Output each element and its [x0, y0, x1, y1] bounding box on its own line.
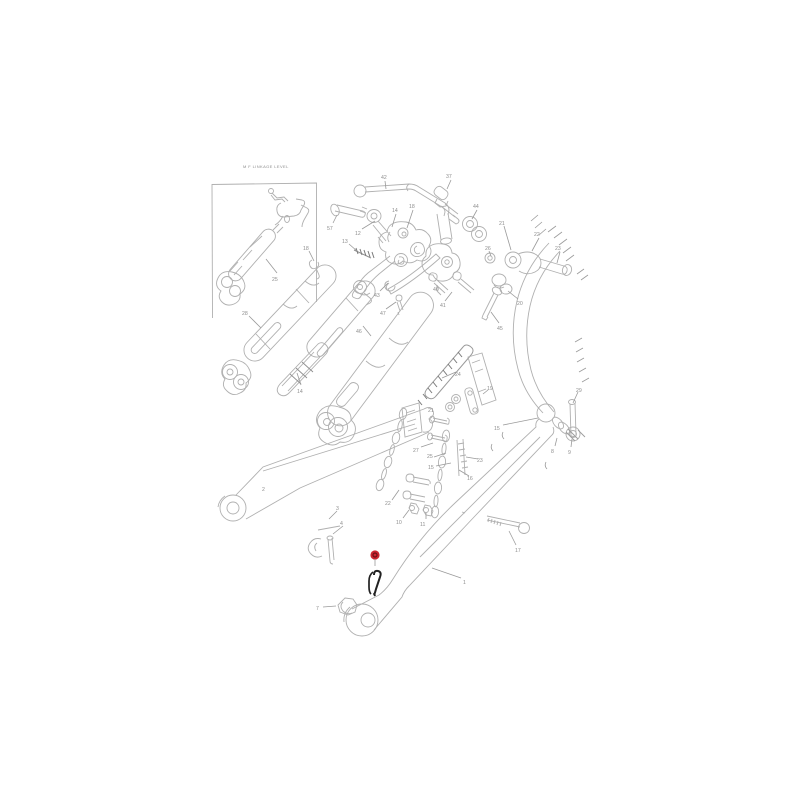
svg-text:18: 18: [303, 246, 309, 252]
svg-text:8: 8: [551, 449, 554, 455]
svg-text:23: 23: [555, 246, 561, 252]
svg-text:4: 4: [340, 521, 343, 527]
svg-text:20: 20: [517, 301, 523, 307]
svg-text:24: 24: [455, 372, 461, 378]
svg-text:19: 19: [487, 386, 493, 392]
svg-text:23: 23: [477, 458, 483, 464]
svg-text:29: 29: [576, 388, 582, 394]
svg-text:15: 15: [494, 426, 500, 432]
svg-text:26: 26: [485, 246, 491, 252]
svg-text:18: 18: [409, 204, 415, 210]
svg-text:7: 7: [316, 606, 319, 612]
svg-text:2: 2: [262, 487, 265, 493]
svg-text:13: 13: [342, 239, 348, 245]
svg-text:22: 22: [534, 232, 540, 238]
svg-text:41: 41: [440, 303, 446, 309]
svg-text:47: 47: [380, 311, 386, 317]
svg-text:10: 10: [396, 520, 402, 526]
svg-text:22: 22: [385, 501, 391, 507]
svg-text:21: 21: [428, 408, 434, 414]
svg-text:11: 11: [420, 522, 425, 528]
svg-text:14: 14: [297, 389, 303, 395]
svg-text:12: 12: [355, 231, 361, 237]
svg-text:28: 28: [242, 311, 248, 317]
svg-text:46: 46: [356, 329, 362, 335]
svg-text:M F LINKAGE LEVEL: M F LINKAGE LEVEL: [243, 164, 289, 169]
svg-text:43: 43: [374, 293, 380, 299]
svg-text:40: 40: [433, 287, 439, 293]
svg-text:44: 44: [473, 204, 479, 210]
svg-text:15: 15: [428, 465, 434, 471]
svg-text:37: 37: [446, 174, 452, 180]
svg-text:25: 25: [272, 277, 278, 283]
svg-text:57: 57: [327, 226, 333, 232]
svg-text:21: 21: [499, 221, 505, 227]
svg-text:9: 9: [568, 450, 571, 456]
svg-text:25: 25: [427, 454, 433, 460]
svg-text:45: 45: [497, 326, 503, 332]
svg-text:27: 27: [413, 448, 419, 454]
svg-text:17: 17: [515, 548, 521, 554]
svg-text:42: 42: [381, 175, 387, 181]
svg-text:16: 16: [467, 476, 473, 482]
svg-text:14: 14: [392, 208, 398, 214]
svg-text:3: 3: [336, 506, 339, 512]
svg-text:1: 1: [463, 580, 466, 586]
